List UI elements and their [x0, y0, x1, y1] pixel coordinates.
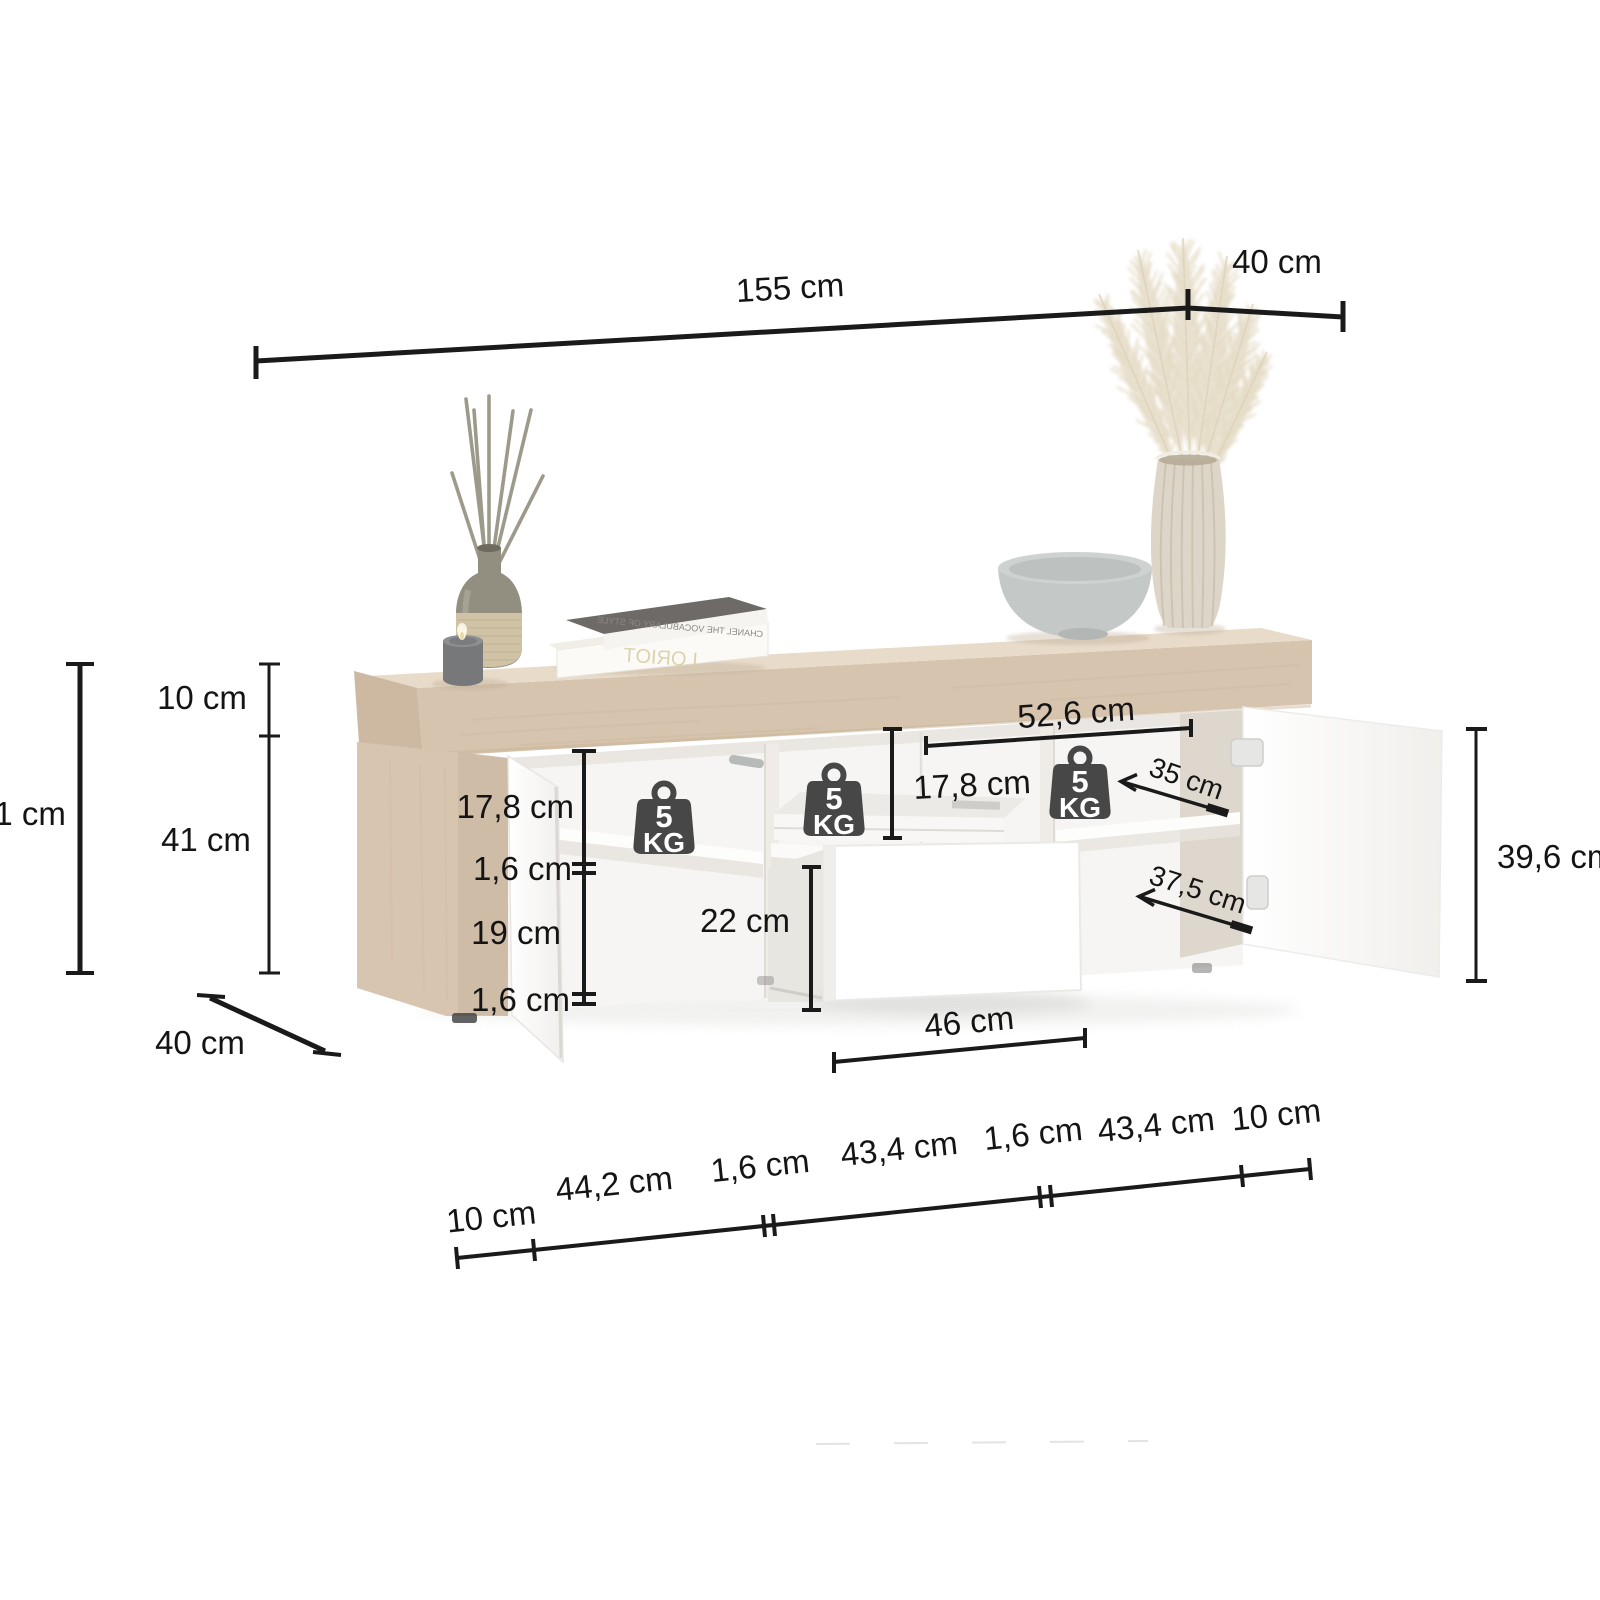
svg-text:19 cm: 19 cm [471, 914, 561, 951]
svg-text:10 cm: 10 cm [157, 679, 247, 716]
svg-text:KG: KG [1059, 792, 1101, 823]
svg-text:1,6 cm: 1,6 cm [471, 981, 570, 1018]
svg-text:39,6 cm: 39,6 cm [1497, 838, 1600, 875]
svg-text:17,8 cm: 17,8 cm [912, 763, 1031, 806]
svg-text:41 cm: 41 cm [161, 821, 251, 858]
svg-text:17,8 cm: 17,8 cm [457, 788, 574, 825]
svg-text:1,6 cm: 1,6 cm [473, 850, 572, 887]
svg-text:22 cm: 22 cm [700, 902, 790, 939]
svg-text:KG: KG [643, 827, 685, 858]
svg-text:40 cm: 40 cm [1232, 243, 1322, 280]
svg-text:KG: KG [813, 809, 855, 840]
svg-text:155 cm: 155 cm [735, 266, 845, 309]
svg-text:40 cm: 40 cm [155, 1024, 245, 1061]
svg-text:51 cm: 51 cm [0, 795, 66, 832]
